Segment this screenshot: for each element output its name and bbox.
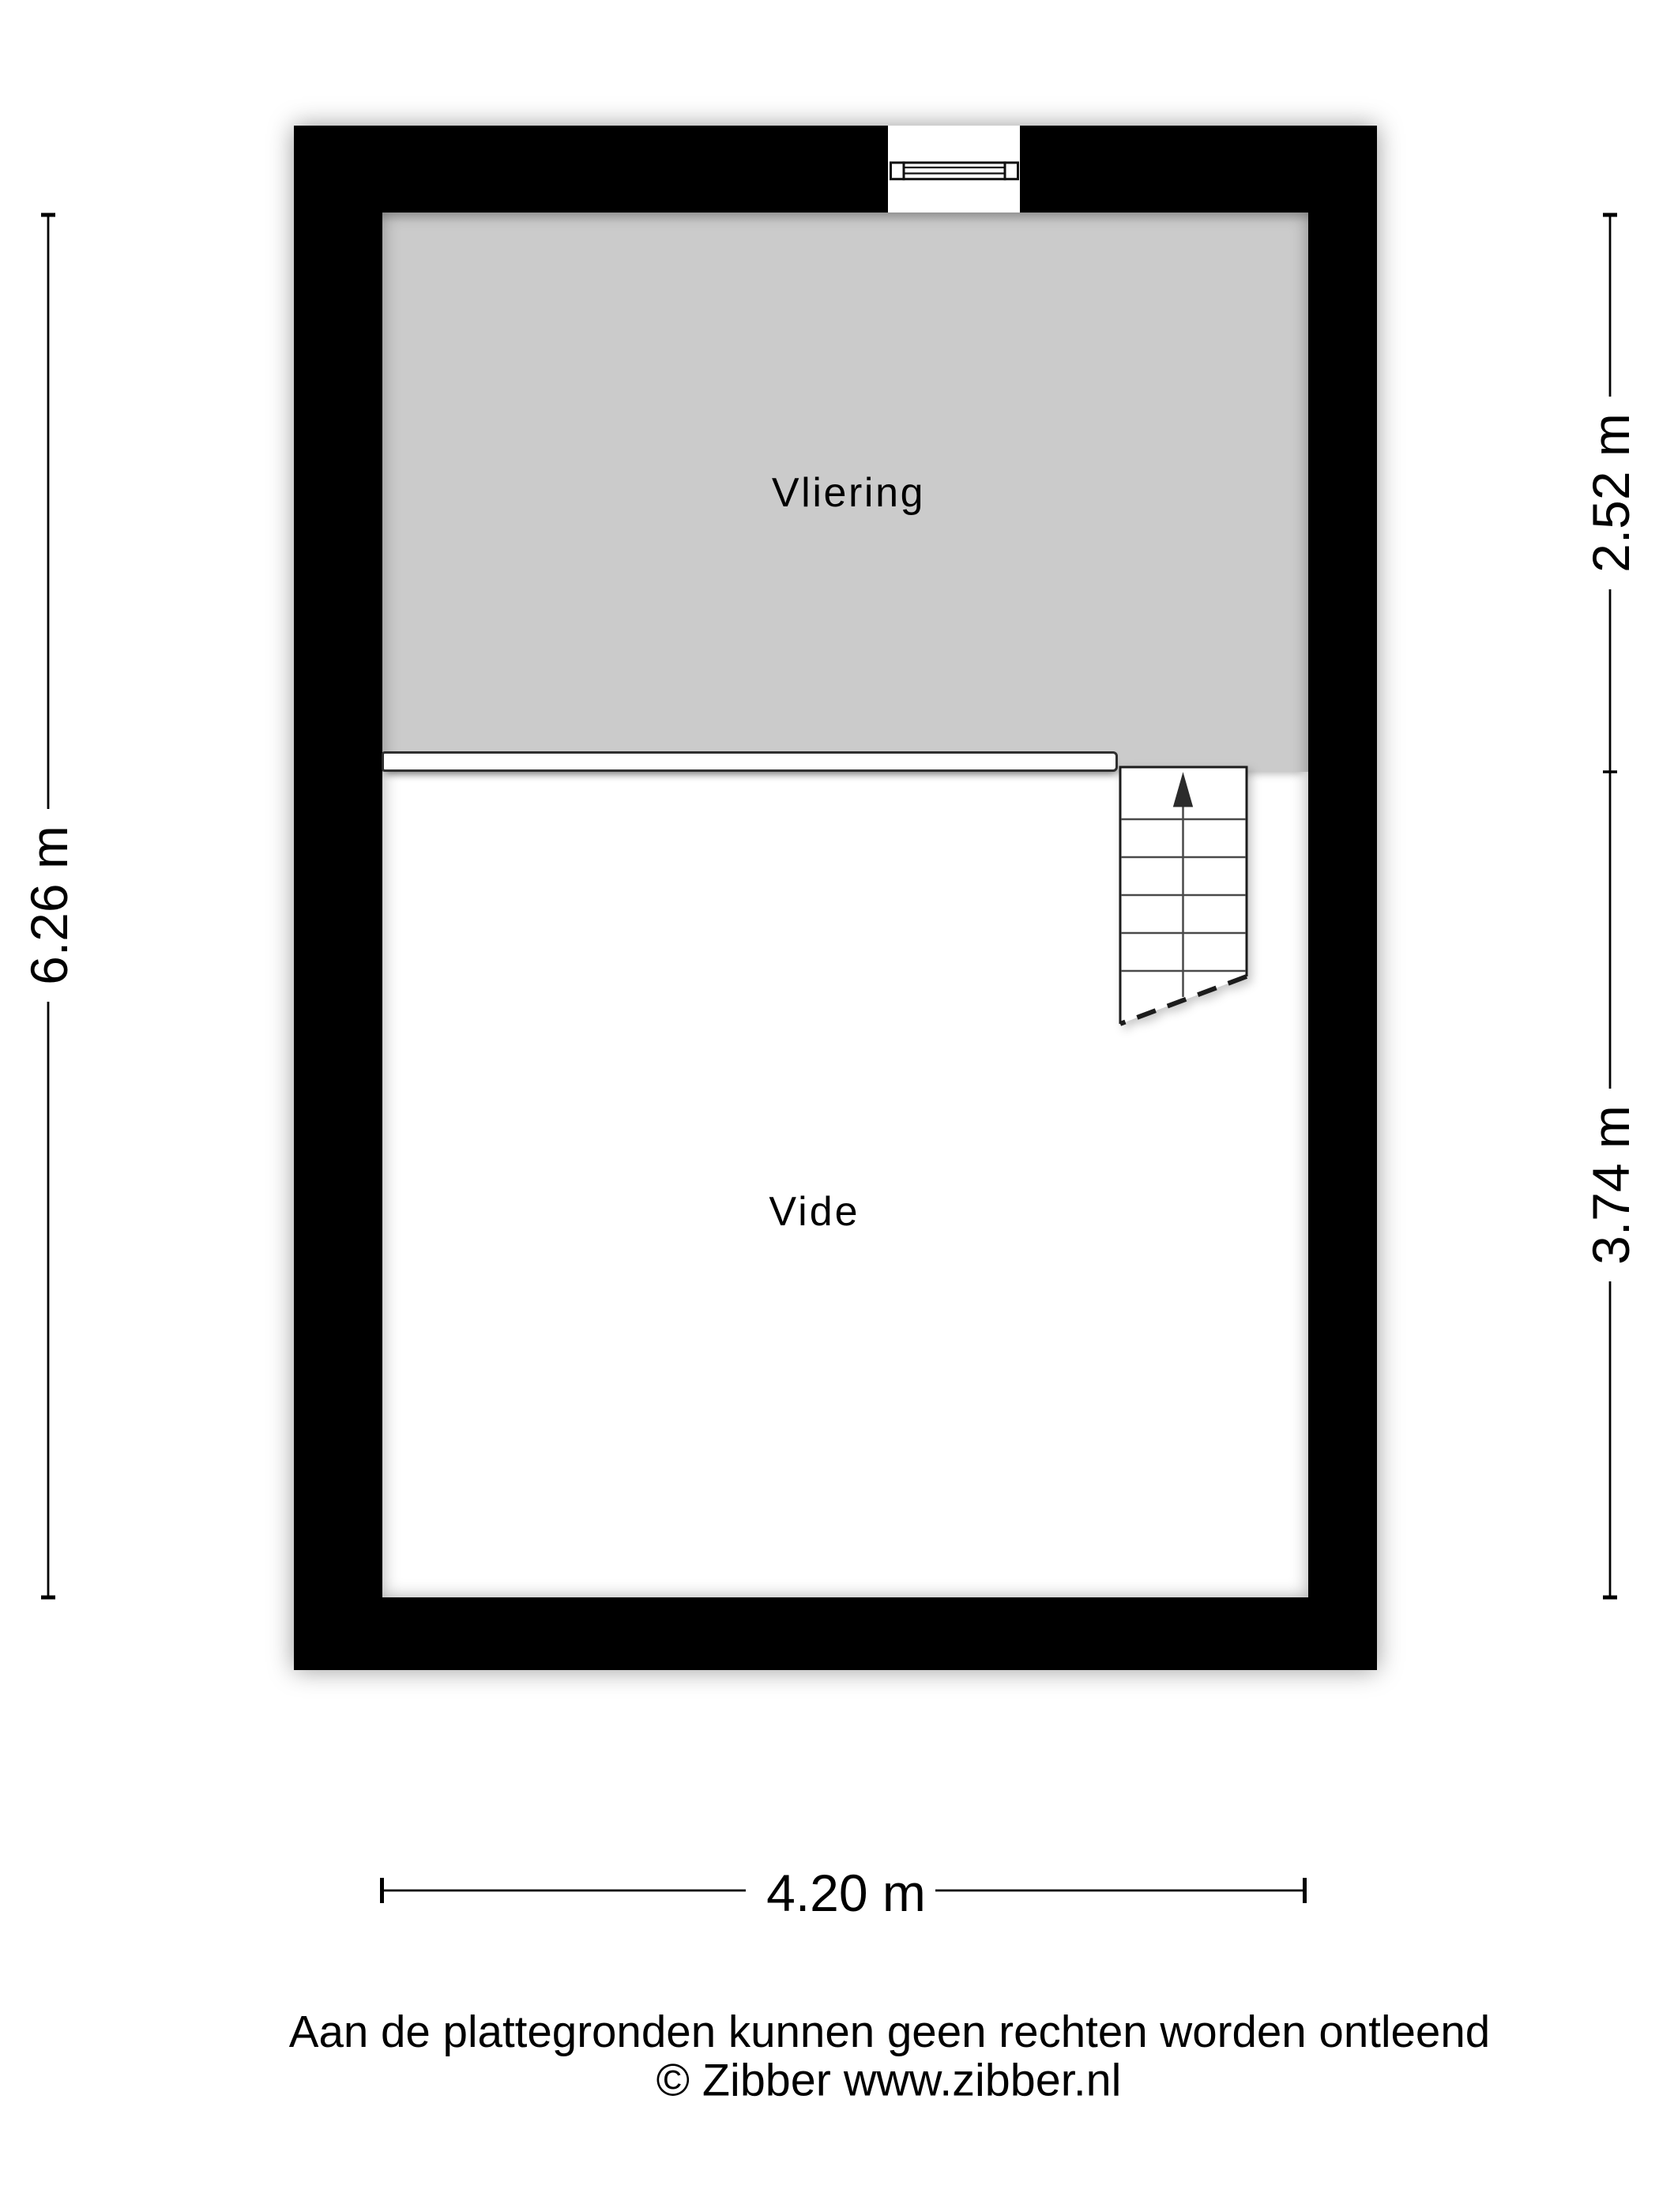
svg-text:4.20 m: 4.20 m	[766, 1864, 926, 1922]
svg-text:3.74 m: 3.74 m	[1582, 1105, 1640, 1265]
svg-text:Vliering: Vliering	[772, 470, 925, 516]
svg-text:Vide: Vide	[769, 1189, 860, 1235]
svg-text:Aan de plattegronden kunnen ge: Aan de plattegronden kunnen geen rechten…	[289, 2007, 1490, 2056]
svg-text:© Zibber www.zibber.nl: © Zibber www.zibber.nl	[656, 2056, 1122, 2106]
svg-text:2.52 m: 2.52 m	[1582, 413, 1640, 573]
svg-text:6.26 m: 6.26 m	[20, 826, 78, 985]
